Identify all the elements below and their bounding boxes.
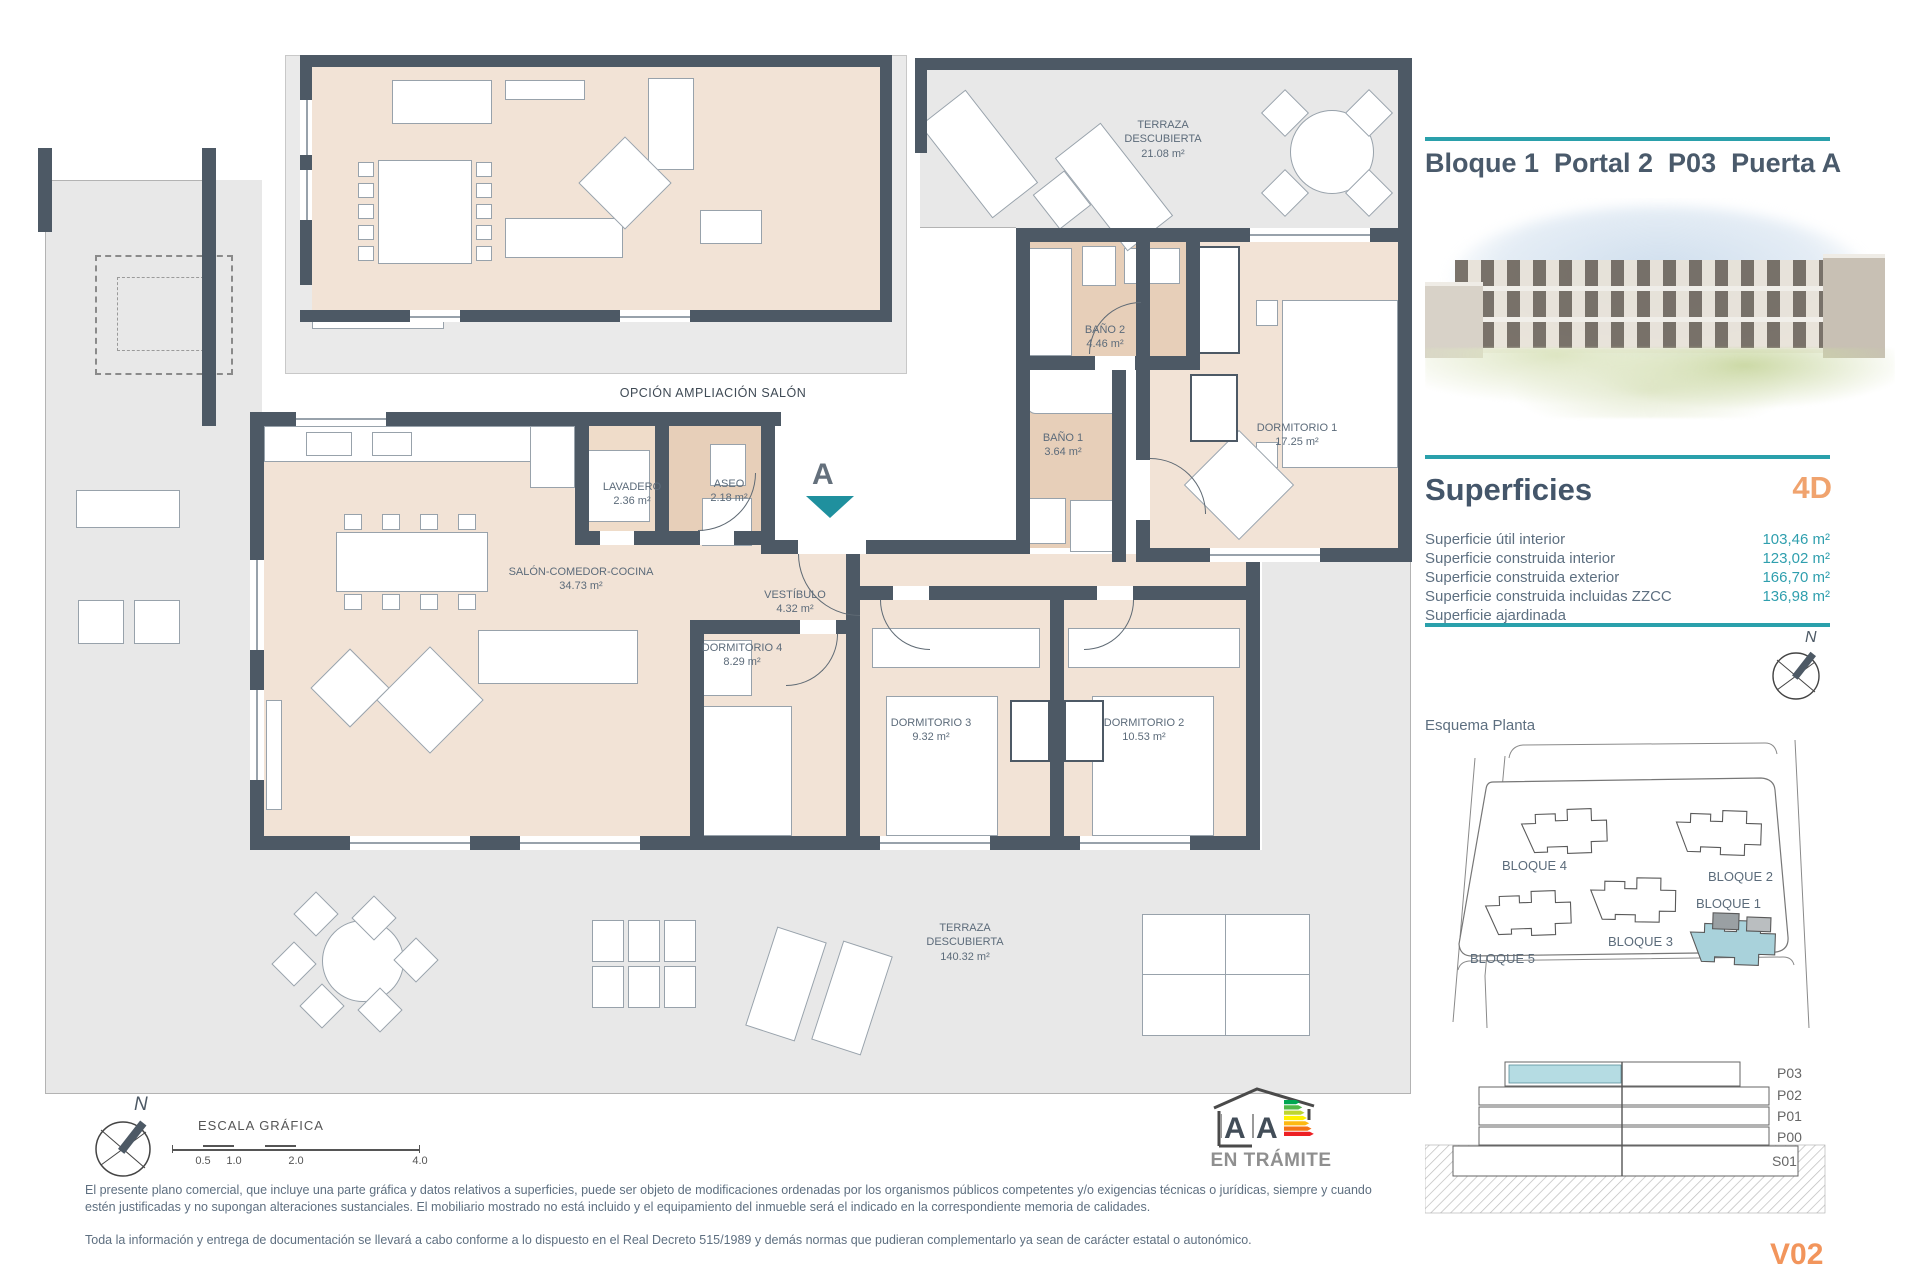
level-p00-box [1479,1127,1769,1145]
energy-letter: A [1256,1112,1278,1145]
chair [476,204,492,219]
wall-segment [1050,600,1064,836]
bloque4-label: BLOQUE 4 [1502,858,1567,873]
building-render-image [1425,198,1895,436]
table-row: Superficie útil interior 103,46 m² [1425,530,1830,549]
table-row: Superficie construida interior 123,02 m² [1425,549,1830,568]
deck-chair [664,920,696,962]
bed [702,706,792,836]
level-label-p01: P01 [1777,1108,1802,1124]
bench [700,210,762,244]
deck-chair [628,966,660,1008]
window [296,412,386,426]
window [350,836,470,850]
level-p01-box [1479,1107,1769,1125]
door-gap [893,586,929,600]
room-label-vestibulo: VESTÍBULO 4.32 m² [745,588,845,617]
window [620,310,690,322]
scale-segment [203,1145,234,1147]
page-title: Bloque 1 Portal 2 P03 Puerta A [1425,148,1841,179]
wall-segment [300,55,892,67]
closet [1190,374,1238,442]
outdoor-table [134,600,180,644]
boundary-line [1410,562,1411,1094]
window [250,560,264,650]
outdoor-table [78,600,124,644]
render-building [1455,260,1855,352]
chair [476,246,492,261]
chair [476,225,492,240]
chair [420,594,438,610]
room-label-dormitorio4: DORMITORIO 4 8.29 m² [687,641,797,670]
chair [476,162,492,177]
room-label-dormitorio1: DORMITORIO 1 17.25 m² [1237,421,1357,450]
room-label-terraza-bottom: TERRAZA DESCUBIERTA 140.32 m² [910,921,1020,964]
window [410,310,460,322]
north-label: N [134,1094,148,1115]
wall-segment [915,58,1412,70]
closet [1198,246,1240,354]
scale-tick-label: 1.0 [226,1155,241,1167]
door-gap [1136,460,1150,520]
wall-segment [690,310,892,322]
sofa [478,630,638,684]
table-row: Superficie construida exterior 166,70 m² [1425,568,1830,587]
window [300,100,312,155]
wc [1082,246,1116,286]
door-gap [1097,586,1133,600]
chair [358,162,374,177]
chair [458,514,476,530]
window [1210,548,1320,562]
level-label-s01: S01 [1772,1153,1797,1169]
boundary-line [45,180,46,1094]
disclaimer-paragraph-2: Toda la información y entrega de documen… [85,1232,1375,1249]
chair [358,183,374,198]
wc [1028,498,1066,544]
bathtub [1026,366,1126,414]
bloque2-label: BLOQUE 2 [1708,869,1773,884]
washbasin [1124,248,1180,284]
outdoor-sofa [76,490,180,528]
kitchen-island [392,80,492,124]
scale-tick [172,1145,173,1153]
disclaimer-paragraph-1: El presente plano comercial, que incluye… [85,1182,1375,1215]
kitchen-sink [372,432,412,456]
room-label-dormitorio3: DORMITORIO 3 9.32 m² [876,716,986,745]
unit-type-code: 4D [1770,470,1832,506]
floor-plan-sheet: TERRAZA DESCUBIERTA 21.08 m² BAÑO 2 4.46… [0,0,1920,1280]
esquema-planta-heading: Esquema Planta [1425,717,1535,734]
wall-segment [1112,370,1126,562]
energy-letter: A [1224,1112,1246,1145]
dining-table [336,532,488,592]
scale-baseline [172,1149,420,1151]
room-label-dormitorio2: DORMITORIO 2 10.53 m² [1089,716,1199,745]
wall-segment [202,148,216,426]
washbasin [1070,500,1116,552]
superficies-table: Superficie útil interior 103,46 m² Super… [1425,530,1830,625]
wall-segment [38,148,52,232]
entrance-marker-arrow-icon [806,496,854,518]
north-label: N [1805,629,1817,646]
scale-segment [265,1145,296,1147]
render-lawn [1425,348,1895,418]
window [250,690,264,780]
bloque3-label: BLOQUE 3 [1608,934,1673,949]
level-s01-box [1453,1146,1798,1176]
room-label-aseo: ASEO 2.18 m² [689,477,769,506]
window [880,836,990,850]
wall-segment [1398,58,1412,562]
compass-icon: N [86,1092,168,1184]
boundary-line [45,1093,1411,1094]
superficies-heading: Superficies [1425,472,1592,508]
door-gap [600,531,634,545]
room-label-bano1: BAÑO 1 3.64 m² [1023,431,1103,460]
kitchen-counter [505,80,585,100]
building-section: P03 P02 P01 P00 S01 [1425,1040,1920,1230]
energy-status-label: EN TRÁMITE [1196,1150,1346,1172]
table-divider [1225,915,1226,1035]
nightstand [1256,300,1278,326]
fridge-column [648,78,694,170]
accent-rule [1425,455,1830,459]
sideboard [266,700,282,810]
entrance-marker-letter: A [812,458,834,492]
compass-icon: N [1765,628,1831,708]
deck-chair [592,920,624,962]
accent-rule [1425,137,1830,141]
chair [358,246,374,261]
chair [344,514,362,530]
level-label-p03: P03 [1777,1065,1802,1081]
chair [344,594,362,610]
deck-chair [628,920,660,962]
deck-chair [592,966,624,1008]
window [1250,228,1370,242]
level-label-p02: P02 [1777,1087,1802,1103]
dining-table [378,160,472,264]
wall-segment [880,55,892,322]
hob [306,432,352,456]
window [1080,836,1190,850]
window [520,836,640,850]
window [300,170,312,220]
render-floor [1455,260,1855,291]
chair [420,514,438,530]
wall-segment [300,310,410,322]
scale-tick-label: 2.0 [288,1155,303,1167]
scale-tick-label: 4.0 [412,1155,427,1167]
accent-rule [1425,623,1830,627]
scale-bar-label: ESCALA GRÁFICA [198,1118,324,1133]
level-label-p00: P00 [1777,1129,1802,1145]
chair [476,183,492,198]
boundary-line [920,227,1016,228]
closet [1010,700,1050,762]
planter-inner [117,277,209,351]
table-row: Superficie construida incluidas ZZCC 136… [1425,587,1830,606]
deck-chair [664,966,696,1008]
wall-segment [460,310,620,322]
level-p03-highlight [1509,1065,1621,1083]
road-line [1795,740,1809,1028]
door-gap [798,540,866,554]
render-wing-right [1823,254,1885,358]
terrace-right [1262,562,1411,850]
large-table [1142,914,1310,1036]
chair [382,514,400,530]
bloque1-label: BLOQUE 1 [1696,896,1761,911]
scale-tick-label: 0.5 [195,1155,210,1167]
room-label-terraza-top: TERRAZA DESCUBIERTA 21.08 m² [1113,118,1213,161]
sofa [505,218,623,258]
door-gap [800,620,836,634]
round-table [322,920,404,1002]
chair [458,594,476,610]
site-plan: BLOQUE 4 BLOQUE 2 BLOQUE 5 BLOQUE 3 BLOQ… [1425,740,1920,1032]
render-wing-left [1425,282,1483,358]
wall-segment [1016,242,1030,554]
boundary-line [45,180,205,181]
bloque5-label: BLOQUE 5 [1470,951,1535,966]
parcel-north [1509,743,1777,758]
table-divider [1143,974,1309,975]
energy-rating-icon: A A [1212,1086,1317,1150]
scale-tick [419,1145,420,1153]
wall-segment [846,600,860,836]
fridge-column [530,426,575,488]
room-label-bano2: BAÑO 2 4.46 m² [1065,323,1145,352]
version-label: V02 [1770,1238,1823,1272]
wall-segment [915,58,927,153]
chair [358,225,374,240]
render-floor [1455,291,1855,322]
level-p02-box [1479,1087,1769,1105]
option-extension-label: OPCIÓN AMPLIACIÓN SALÓN [573,386,853,400]
chair [358,204,374,219]
room-label-salon: SALÓN-COMEDOR-COCINA 34.73 m² [496,565,666,594]
door-gap [700,531,734,545]
chair [382,594,400,610]
room-label-lavadero: LAVADERO 2.36 m² [582,480,682,509]
door-gap [1095,356,1135,370]
